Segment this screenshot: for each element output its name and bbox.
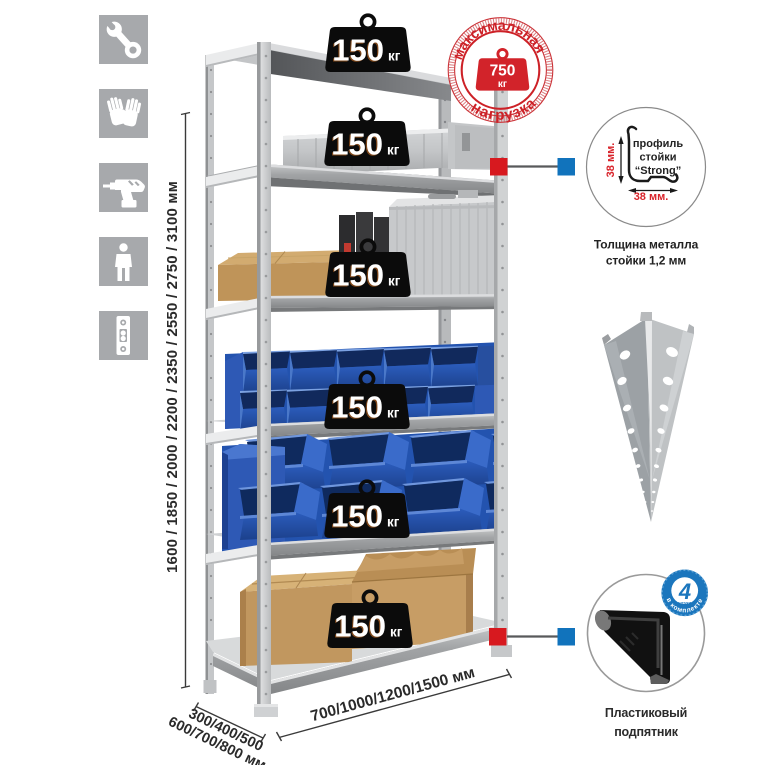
svg-text:стойки 1,2 мм: стойки 1,2 мм [606, 254, 687, 268]
svg-text:Толщина металла: Толщина металла [594, 238, 699, 252]
svg-text:подпятник: подпятник [614, 725, 679, 739]
svg-text:штуки: штуки [678, 601, 692, 606]
svg-text:профиль: профиль [633, 138, 683, 150]
svg-text:38 мм.: 38 мм. [634, 191, 669, 203]
svg-text:стойки: стойки [639, 152, 676, 164]
svg-text:кг: кг [498, 79, 507, 90]
svg-text:“Strong”: “Strong” [635, 165, 681, 177]
svg-text:1600 / 1850 / 2000 / 2200 / 23: 1600 / 1850 / 2000 / 2200 / 2350 / 2550 … [164, 181, 181, 573]
svg-text:38 мм.: 38 мм. [605, 143, 617, 178]
svg-text:750: 750 [490, 63, 516, 80]
svg-text:Пластиковый: Пластиковый [605, 706, 687, 720]
